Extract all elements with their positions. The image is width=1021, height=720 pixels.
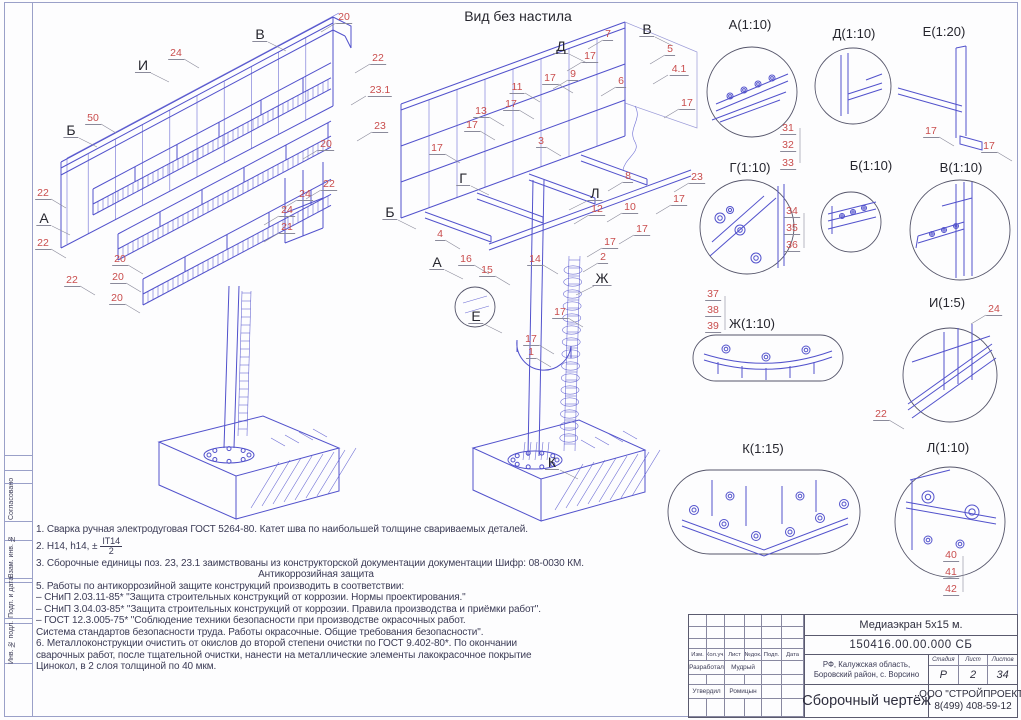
tb-cell [689, 615, 707, 627]
tb-role-label: Разработал [689, 661, 725, 675]
note-line: 1. Сварка ручная электродуговая ГОСТ 526… [36, 524, 646, 536]
tb-cell [782, 615, 804, 627]
tb-cell [745, 627, 762, 639]
tb-cell [782, 661, 804, 675]
project-name: Медиаэкран 5х15 м. [805, 615, 1017, 636]
company-phone: 8(499) 408-59-12 [934, 701, 1011, 713]
note-line: 5. Работы по антикоррозийной защите конс… [36, 581, 646, 593]
tb-cell [745, 615, 762, 627]
title-block-main: Медиаэкран 5х15 м. 150416.00.00.000 СБ Р… [805, 615, 1017, 717]
notes-block: 1. Сварка ручная электродуговая ГОСТ 526… [36, 524, 646, 673]
tb-cell [689, 639, 707, 649]
note-line: 2. Н14, h14, ± IT14 2 [36, 536, 646, 558]
title-block-revision-grid: Изм.Кол.уч.Лист№док.Подп.ДатаРазработалМ… [689, 615, 805, 717]
tb-cell [689, 699, 707, 717]
note-line: сварочных работ, после тщательной очистк… [36, 650, 646, 662]
sheets-total-cell: Листов 34 [988, 655, 1017, 684]
tb-cell [745, 699, 762, 717]
tb-cell [707, 615, 725, 627]
tb-cell [762, 675, 782, 685]
tb-cell [782, 639, 804, 649]
tb-cell [725, 639, 745, 649]
tb-cell [725, 615, 745, 627]
tb-cell [762, 639, 782, 649]
note-line: 6. Металлоконструкции очистить от окисло… [36, 638, 646, 650]
tb-header-cell: Кол.уч. [707, 649, 725, 661]
document-number: 150416.00.00.000 СБ [805, 636, 1017, 655]
tb-cell [782, 685, 804, 699]
tb-cell [782, 627, 804, 639]
note-line: – СНиП 2.03.11-85* "Защита строительных … [36, 592, 646, 604]
tb-role-name: Мудрый [725, 661, 762, 675]
tb-header-cell: Подп. [762, 649, 782, 661]
drawing-sheet: СогласованоВзам. инв. №Подп. и датаИнв. … [0, 0, 1021, 720]
company-cell: ООО "СТРОЙПРОЕКТ" 8(499) 408-59-12 [929, 685, 1017, 717]
tolerance-fraction: IT14 2 [100, 537, 122, 556]
project-location: РФ, Калужская область, Боровский район, … [805, 655, 929, 685]
tb-cell [745, 675, 762, 685]
tb-cell [707, 699, 725, 717]
tb-header-cell: Дата [782, 649, 804, 661]
drawing-type: Сборочный чертёж [805, 685, 929, 717]
tb-cell [782, 675, 804, 685]
stage-sheet-cells: Стадия Р Лист 2 Листов 34 [929, 655, 1017, 685]
tb-cell [707, 627, 725, 639]
tb-header-cell: №док. [745, 649, 762, 661]
tb-cell [689, 675, 707, 685]
sheet-cell: Лист 2 [959, 655, 989, 684]
note-line: Цинокол, в 2 слоя толщиной по 40 мкм. [36, 661, 646, 673]
tb-cell [725, 675, 745, 685]
tb-header-cell: Лист [725, 649, 745, 661]
tb-cell [762, 627, 782, 639]
note-heading: Антикоррозийная защита [36, 569, 596, 581]
tb-cell [707, 639, 725, 649]
title-block: Изм.Кол.уч.Лист№док.Подп.ДатаРазработалМ… [688, 614, 1018, 718]
note-line: Система стандартов безопасности труда. Р… [36, 627, 646, 639]
stage-cell: Стадия Р [929, 655, 959, 684]
company-name: ООО "СТРОЙПРОЕКТ" [919, 689, 1021, 701]
tb-cell [782, 699, 804, 717]
tb-cell [762, 685, 782, 699]
note-line: – СНиП 3.04.03-85* "Защита строительных … [36, 604, 646, 616]
tb-header-cell: Изм. [689, 649, 707, 661]
note-line: 3. Сборочные единицы поз. 23, 23.1 заимс… [36, 558, 646, 570]
tb-role-name: Ромицын [725, 685, 762, 699]
tb-cell [725, 699, 745, 717]
tb-cell [689, 627, 707, 639]
tb-cell [762, 615, 782, 627]
tb-cell [762, 661, 782, 675]
tb-cell [762, 699, 782, 717]
tb-cell [725, 627, 745, 639]
note-line: – ГОСТ 12.3.005-75* "Соблюдение техники … [36, 615, 646, 627]
tb-role-label: Утвердил [689, 685, 725, 699]
tb-cell [745, 639, 762, 649]
tb-cell [707, 675, 725, 685]
